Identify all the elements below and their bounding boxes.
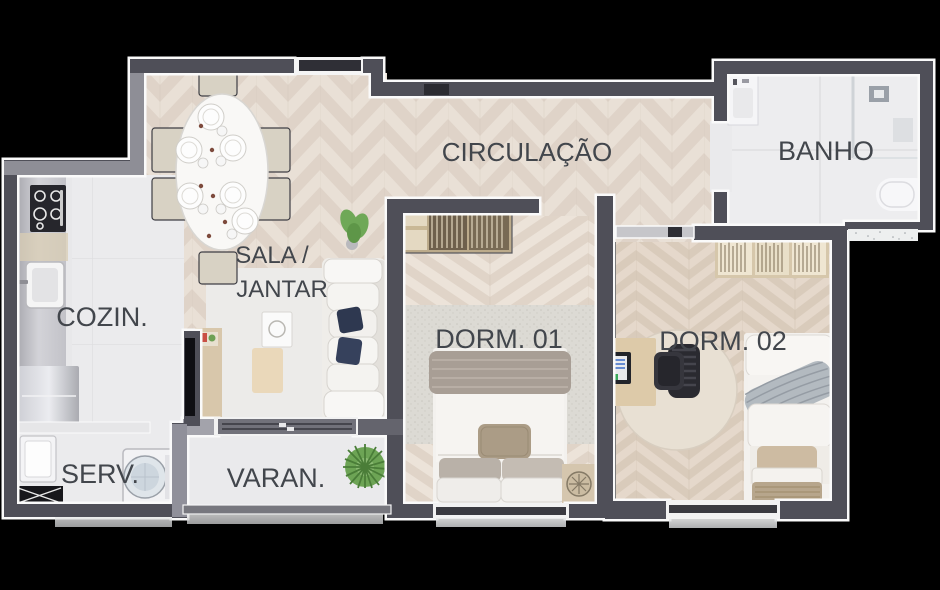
svg-text:BANHO: BANHO <box>778 136 874 166</box>
svg-text:DORM. 02: DORM. 02 <box>659 326 787 356</box>
svg-text:VARAN.: VARAN. <box>227 463 326 493</box>
svg-text:DORM. 01: DORM. 01 <box>435 324 563 354</box>
svg-text:JANTAR: JANTAR <box>236 276 328 303</box>
svg-text:SERV.: SERV. <box>61 459 139 489</box>
svg-text:SALA /: SALA / <box>235 242 309 269</box>
svg-text:CIRCULAÇÃO: CIRCULAÇÃO <box>442 137 612 167</box>
svg-text:COZIN.: COZIN. <box>56 302 148 332</box>
